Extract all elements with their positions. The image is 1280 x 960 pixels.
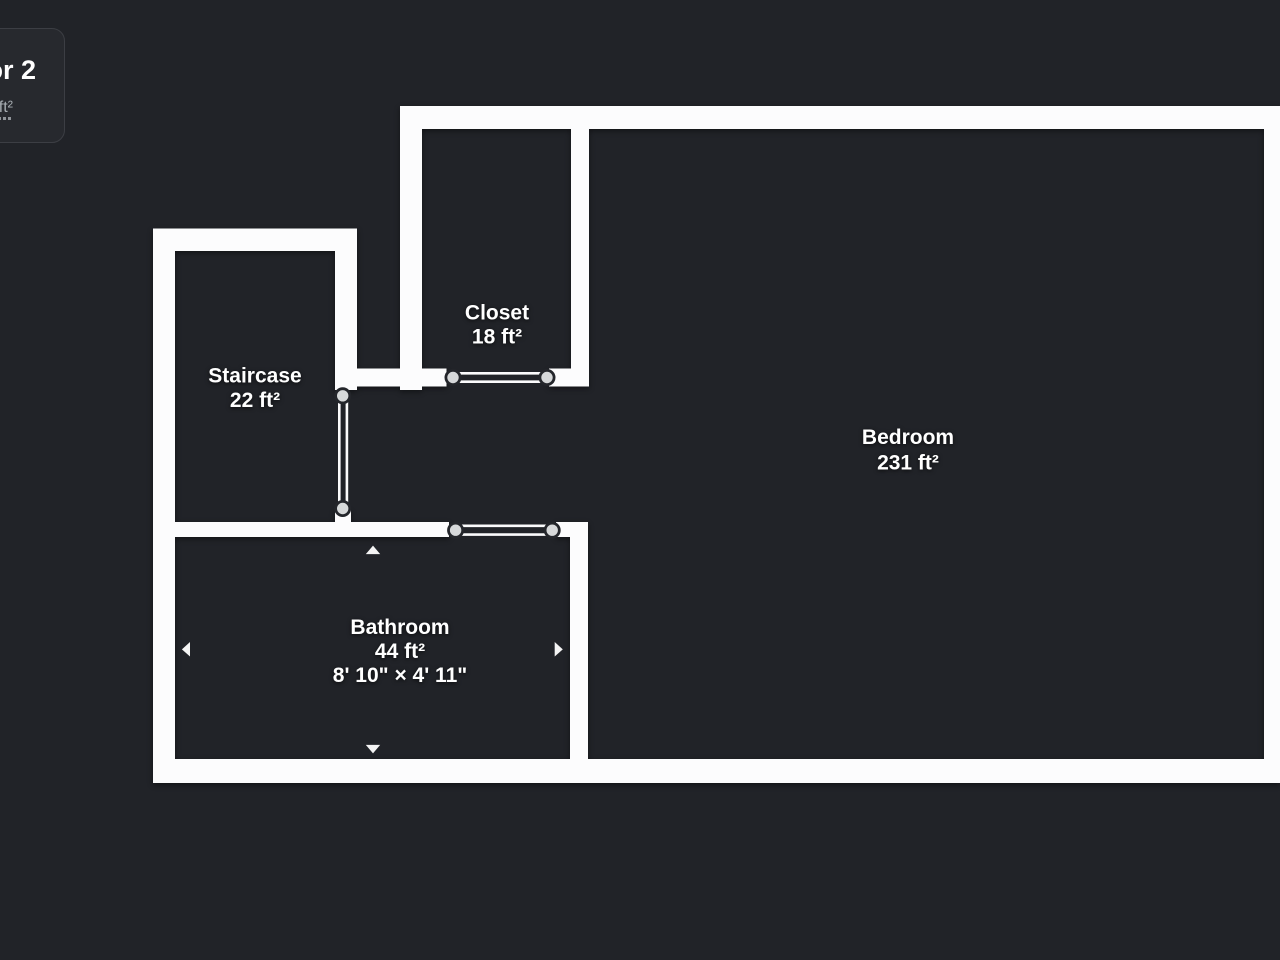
svg-text:22 ft²: 22 ft² — [230, 389, 280, 412]
svg-text:Bathroom: Bathroom — [350, 616, 449, 639]
svg-text:8' 10" × 4' 11": 8' 10" × 4' 11" — [333, 664, 467, 687]
svg-text:Closet: Closet — [465, 302, 529, 325]
svg-text:44 ft²: 44 ft² — [375, 640, 425, 663]
svg-text:18 ft²: 18 ft² — [472, 326, 522, 349]
svg-text:231 ft²: 231 ft² — [877, 452, 939, 475]
svg-text:Staircase: Staircase — [208, 365, 301, 388]
svg-text:Bedroom: Bedroom — [862, 426, 954, 449]
